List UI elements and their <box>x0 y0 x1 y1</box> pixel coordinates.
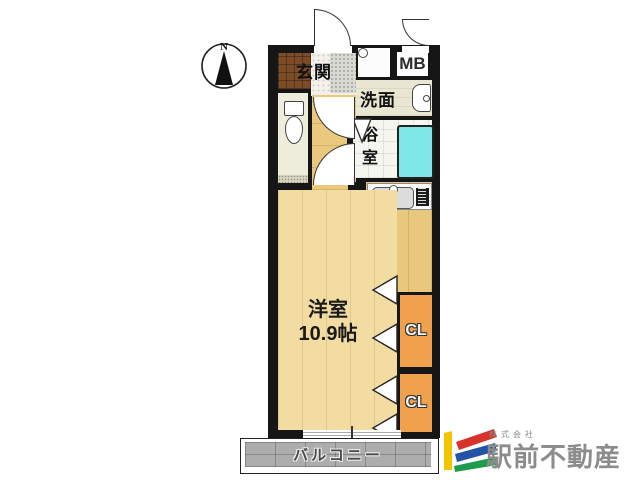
closet-lower: CL <box>400 374 432 432</box>
entrance-label: 玄関 <box>296 58 332 83</box>
washing-machine-icon <box>358 48 390 77</box>
toilet-icon <box>284 101 304 116</box>
toilet-room <box>278 93 308 183</box>
closet-door-panels-icon <box>371 272 399 444</box>
balcony-window <box>303 430 401 438</box>
toilet-threshold <box>278 175 308 183</box>
balcony-tiles: バルコニー <box>245 442 431 467</box>
entrance-door-swing-icon <box>314 9 351 46</box>
logo-company-name: 駅前不動産 <box>486 437 621 474</box>
toilet-bowl-icon <box>285 116 303 144</box>
washroom-label: 洗面 <box>360 86 396 111</box>
stove-icon <box>416 188 429 206</box>
washbasin-icon <box>412 84 431 112</box>
balcony-label: バルコニー <box>293 444 383 465</box>
mb-door-opening <box>402 46 429 53</box>
compass-north-icon: N <box>197 36 251 90</box>
floor-plan-page: N MB 洗面 浴室 洋室 10.9帖 CL CL <box>0 0 640 480</box>
meter-box: MB <box>397 52 428 76</box>
mb-door-swing-icon <box>402 19 429 46</box>
entrance-tile <box>330 53 356 93</box>
balcony: バルコニー <box>240 438 439 474</box>
washbasin-drain-icon <box>423 95 430 102</box>
bathtub-icon <box>397 125 434 179</box>
washing-machine-tap-icon <box>358 48 368 58</box>
compass-north-label: N <box>220 41 228 53</box>
entrance-door-opening <box>314 46 352 53</box>
closet-upper: CL <box>400 295 432 367</box>
